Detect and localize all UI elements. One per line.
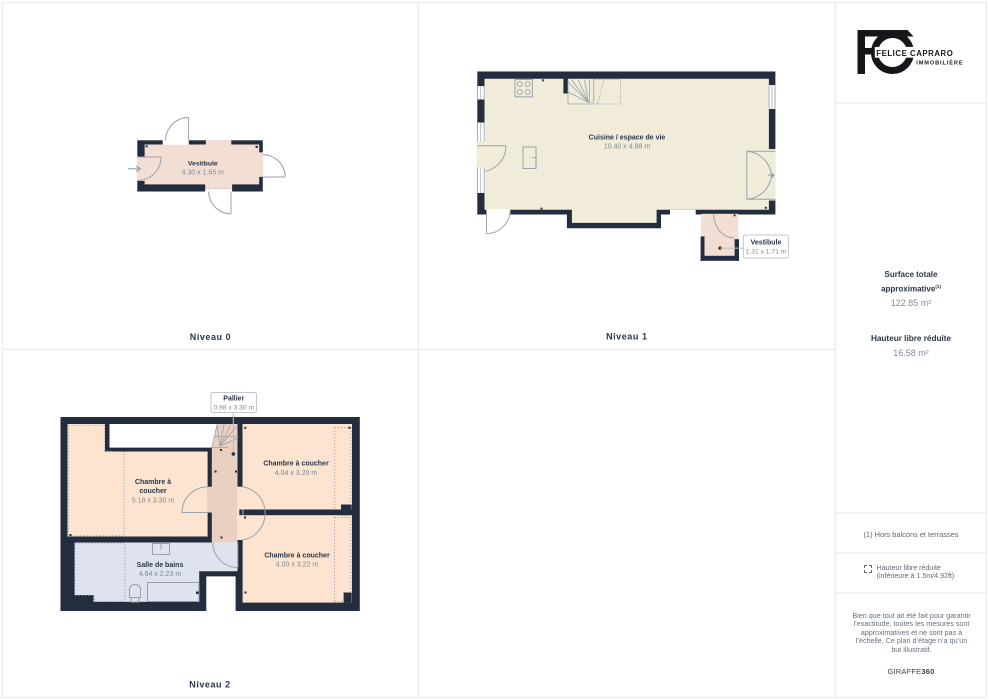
svg-text:10.40 x 4.88 m: 10.40 x 4.88 m [604,143,650,150]
svg-text:Cuisine / espace de vie: Cuisine / espace de vie [589,134,666,141]
svg-text:Chambre à: Chambre à [135,479,171,486]
svg-text:Chambre à coucher: Chambre à coucher [263,461,329,468]
svg-text:Vestibule: Vestibule [751,240,782,247]
svg-text:Salle de bains: Salle de bains [137,562,184,569]
svg-text:Vestibule: Vestibule [188,161,218,168]
svg-text:Niveau 1: Niveau 1 [606,332,647,342]
svg-text:4.64 x 2.23 m: 4.64 x 2.23 m [139,571,182,578]
svg-text:4.30 x 1.65 m: 4.30 x 1.65 m [182,169,225,176]
svg-text:4.00 x 3.22 m: 4.00 x 3.22 m [276,562,319,569]
svg-text:IMMOBILIÈRE: IMMOBILIÈRE [916,59,963,67]
svg-text:Niveau 0: Niveau 0 [190,332,231,342]
svg-text:coucher: coucher [139,488,167,495]
svg-text:5.18 x 3.30 m: 5.18 x 3.30 m [132,498,175,505]
svg-text:Niveau 2: Niveau 2 [189,680,230,690]
svg-text:Chambre à coucher: Chambre à coucher [264,553,330,560]
svg-text:Pallier: Pallier [223,396,244,403]
svg-text:FELICE CAPRARO: FELICE CAPRARO [876,49,953,58]
svg-text:1.31 x 1.71 m: 1.31 x 1.71 m [746,249,787,256]
svg-text:4.04 x 3.20 m: 4.04 x 3.20 m [275,470,318,477]
svg-text:0.98 x 3.30 m: 0.98 x 3.30 m [214,405,255,412]
